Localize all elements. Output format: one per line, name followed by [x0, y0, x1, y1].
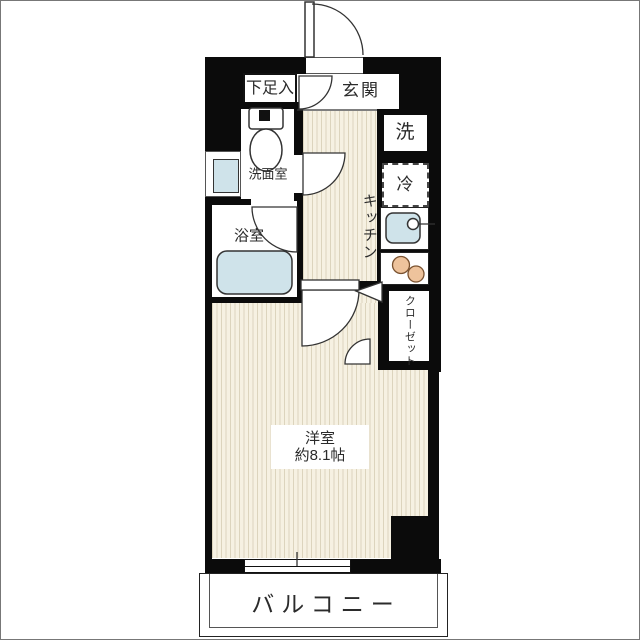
entrance-door-leaf	[305, 2, 314, 57]
shoe-cabinet-label: 下足入	[246, 80, 294, 98]
bathroom-label: 浴室	[234, 227, 264, 244]
faucet-icon	[408, 219, 419, 230]
bathtub-icon	[217, 251, 292, 294]
washroom-label: 洗面室	[248, 168, 287, 183]
western-room-name: 洋室	[295, 430, 346, 447]
stove-burner-icon	[408, 266, 424, 282]
washer-label: 洗	[395, 122, 414, 144]
room-door-arc	[302, 290, 359, 346]
stove-burner-icon	[393, 257, 410, 274]
fixtures-layer	[1, 1, 640, 640]
door-stop-triangle	[356, 282, 382, 302]
toilet-lever-icon	[259, 110, 270, 121]
western-room-label: 洋室 約8.1帖	[295, 430, 346, 465]
fridge-label: 冷	[397, 175, 414, 195]
room-door-leaf	[301, 280, 359, 290]
entrance-label: 玄関	[342, 81, 380, 101]
floorplan-canvas: 下足入 玄関 洗面室 浴室 キッチン 洗 冷 クローゼット 洋室 約8.1帖 バ…	[0, 0, 640, 640]
closet-door-arc	[345, 339, 370, 364]
kitchen-label: キッチン	[360, 193, 377, 261]
closet-label: クローゼット	[403, 295, 416, 367]
western-room-area: 約8.1帖	[295, 447, 346, 464]
entrance-inner-door-arc	[299, 76, 332, 109]
toilet-bowl-icon	[250, 129, 282, 171]
washroom-door-arc	[303, 153, 345, 195]
entrance-door-arc	[312, 4, 363, 55]
balcony-label: バルコニー	[251, 591, 401, 617]
